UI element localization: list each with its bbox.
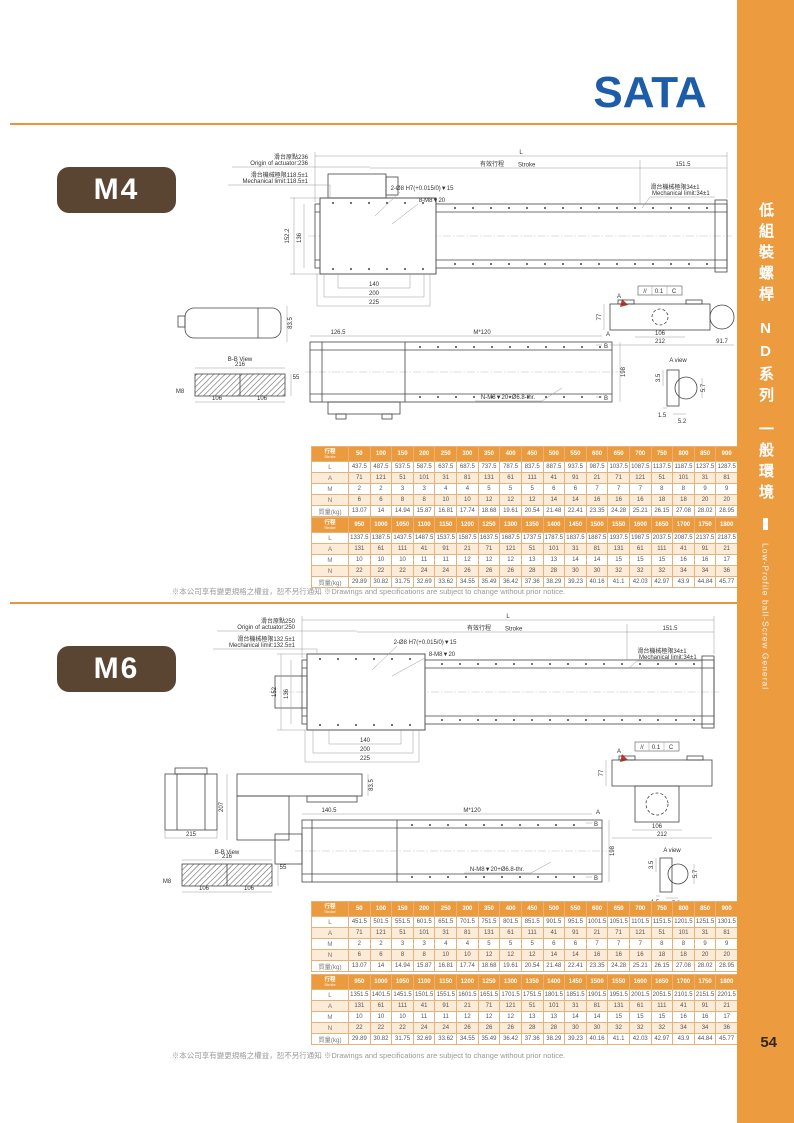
value-cell: 31 — [694, 473, 716, 484]
stroke-value-cell: 700 — [629, 447, 651, 462]
value-cell: 40.16 — [586, 1034, 608, 1045]
value-cell: 23.35 — [586, 961, 608, 972]
spec-table-row: L1337.51387.51437.51487.51537.51587.5163… — [312, 533, 738, 544]
value-cell: 26 — [478, 566, 500, 577]
value-cell: 31 — [694, 928, 716, 939]
value-cell: 7 — [608, 939, 630, 950]
value-cell: 1451.5 — [392, 990, 414, 1001]
value-cell: 1337.5 — [349, 533, 371, 544]
stroke-value-cell: 1250 — [478, 518, 500, 533]
value-cell: 18 — [673, 950, 695, 961]
stroke-value-cell: 1500 — [586, 975, 608, 990]
dim-label: 136 — [297, 232, 303, 243]
dim-label: 5.2 — [678, 419, 687, 425]
value-cell: 5 — [500, 939, 522, 950]
dim-label: 152.2 — [285, 228, 291, 244]
value-cell: 3 — [413, 484, 435, 495]
value-cell: 7 — [629, 939, 651, 950]
stroke-value-cell: 1550 — [608, 518, 630, 533]
value-cell: 35.49 — [478, 1034, 500, 1045]
model-badge-m4: M4 — [57, 167, 176, 213]
stroke-value-cell: 50 — [349, 447, 371, 462]
spec-table-row: 質量(kg)13.071414.9415.8716.8117.7418.6819… — [312, 506, 738, 517]
value-cell: 28.95 — [716, 961, 738, 972]
value-cell: 32.69 — [413, 1034, 435, 1045]
value-cell: 51 — [521, 544, 543, 555]
value-cell: 987.5 — [586, 462, 608, 473]
stroke-value-cell: 1400 — [543, 975, 565, 990]
value-cell: 12 — [478, 495, 500, 506]
value-cell: 13 — [521, 1012, 543, 1023]
value-cell: 3 — [392, 939, 414, 950]
value-cell: 22.41 — [565, 961, 587, 972]
value-cell: 12 — [500, 555, 522, 566]
m6-plan-dimensions: L 有效行程 Stroke 151.5 滑台原點250 Origin of ac… — [213, 614, 714, 762]
value-cell: 39.23 — [565, 1034, 587, 1045]
spec-table-row: M101010111112121213131414151515161617 — [312, 555, 738, 566]
value-cell: 25.21 — [629, 506, 651, 517]
row-label-cell: M — [312, 555, 349, 566]
dim-label: 3.5 — [649, 860, 655, 869]
value-cell: 34.55 — [457, 1034, 479, 1045]
stroke-value-cell: 600 — [586, 447, 608, 462]
value-cell: 2 — [349, 939, 371, 950]
value-cell: 51 — [521, 1001, 543, 1012]
value-cell: 1901.5 — [586, 990, 608, 1001]
datum-marker-a: A — [617, 294, 621, 300]
value-cell: 42.03 — [629, 1034, 651, 1045]
value-cell: 10 — [392, 555, 414, 566]
limit-annotation-en: Mechanical limit:132.5±1 — [229, 643, 296, 649]
value-cell: 20 — [694, 950, 716, 961]
dim-label: 151.5 — [675, 162, 691, 168]
value-cell: 537.5 — [392, 462, 414, 473]
value-cell: 701.5 — [457, 917, 479, 928]
value-cell: 2001.5 — [629, 990, 651, 1001]
value-cell: 29.89 — [349, 1034, 371, 1045]
value-cell: 45.77 — [716, 1034, 738, 1045]
value-cell: 651.5 — [435, 917, 457, 928]
value-cell: 41 — [413, 1001, 435, 1012]
dim-label: 91.7 — [716, 339, 728, 345]
disclaimer: ※本公司享有變更規格之權益，恕不另行通知 ※Drawings and speci… — [0, 1050, 737, 1061]
value-cell: 1887.5 — [586, 533, 608, 544]
stroke-header-row: 行程Stroke50100150200250300350400450500550… — [312, 447, 738, 462]
row-label-cell: A — [312, 1001, 349, 1012]
value-cell: 14 — [370, 506, 392, 517]
stroke-header-row: 行程Stroke95010001050110011501200125013001… — [312, 518, 738, 533]
value-cell: 111 — [521, 928, 543, 939]
stroke-value-cell: 1150 — [435, 975, 457, 990]
value-cell: 30.82 — [370, 1034, 392, 1045]
value-cell: 13.07 — [349, 961, 371, 972]
value-cell: 26.15 — [651, 961, 673, 972]
stroke-value-cell: 1400 — [543, 518, 565, 533]
value-cell: 12 — [521, 950, 543, 961]
value-cell: 41.1 — [608, 1034, 630, 1045]
value-cell: 13 — [543, 555, 565, 566]
dim-label: 106 — [244, 886, 255, 892]
value-cell: 6 — [543, 484, 565, 495]
value-cell: 30 — [565, 1023, 587, 1034]
value-cell: 81 — [716, 928, 738, 939]
value-cell: 1737.5 — [521, 533, 543, 544]
value-cell: 28 — [521, 1023, 543, 1034]
value-cell: 9 — [694, 939, 716, 950]
value-cell: 71 — [349, 473, 371, 484]
value-cell: 18 — [651, 495, 673, 506]
stroke-value-cell: 350 — [478, 447, 500, 462]
value-cell: 28.95 — [716, 506, 738, 517]
value-cell: 2087.5 — [673, 533, 695, 544]
stroke-value-cell: 1650 — [651, 975, 673, 990]
value-cell: 10 — [457, 950, 479, 961]
value-cell: 91 — [565, 473, 587, 484]
row-label-cell: L — [312, 917, 349, 928]
value-cell: 1087.5 — [629, 462, 651, 473]
spec-table-row: N222222242426262628283030323232343436 — [312, 566, 738, 577]
spec-table-row: M101010111112121213131414151515161617 — [312, 1012, 738, 1023]
value-cell: 28.02 — [694, 961, 716, 972]
value-cell: 1287.5 — [716, 462, 738, 473]
value-cell: 3 — [413, 939, 435, 950]
value-cell: 937.5 — [565, 462, 587, 473]
value-cell: 637.5 — [435, 462, 457, 473]
value-cell: 23.35 — [586, 506, 608, 517]
stroke-header-cell: 行程Stroke — [312, 975, 349, 990]
row-label-cell: L — [312, 533, 349, 544]
value-cell: 10 — [435, 950, 457, 961]
value-cell: 2187.5 — [716, 533, 738, 544]
value-cell: 15 — [651, 555, 673, 566]
value-cell: 6 — [565, 939, 587, 950]
value-cell: 9 — [716, 939, 738, 950]
stroke-label-zh: 有效行程 — [480, 160, 504, 168]
value-cell: 451.5 — [349, 917, 371, 928]
value-cell: 61 — [629, 1001, 651, 1012]
value-cell: 33.62 — [435, 1034, 457, 1045]
value-cell: 25.21 — [629, 961, 651, 972]
value-cell: 31 — [565, 1001, 587, 1012]
value-cell: 6 — [349, 495, 371, 506]
spec-table-row: L451.5501.5551.5601.5651.5701.5751.5801.… — [312, 917, 738, 928]
value-cell: 8 — [413, 495, 435, 506]
thread-label: M8 — [176, 389, 185, 395]
value-cell: 121 — [629, 928, 651, 939]
value-cell: 1687.5 — [500, 533, 522, 544]
stroke-header-cell: 行程Stroke — [312, 902, 349, 917]
value-cell: 27.08 — [673, 506, 695, 517]
value-cell: 51 — [651, 473, 673, 484]
value-cell: 601.5 — [413, 917, 435, 928]
sidebar-series-name: ND系列 — [755, 320, 776, 408]
value-cell: 17.74 — [457, 506, 479, 517]
value-cell: 18.68 — [478, 506, 500, 517]
value-cell: 20 — [716, 950, 738, 961]
value-cell: 887.5 — [543, 462, 565, 473]
value-cell: 34 — [694, 1023, 716, 1034]
value-cell: 28 — [521, 566, 543, 577]
m4-spec-table-2: 行程Stroke95010001050110011501200125013001… — [311, 517, 738, 588]
value-cell: 1951.5 — [608, 990, 630, 1001]
value-cell: 24 — [435, 566, 457, 577]
catalog-page: SATA M4 L — [0, 0, 794, 1123]
stroke-value-cell: 1600 — [629, 518, 651, 533]
value-cell: 91 — [435, 1001, 457, 1012]
value-cell: 21 — [716, 544, 738, 555]
value-cell: 131 — [608, 1001, 630, 1012]
stroke-value-cell: 850 — [694, 447, 716, 462]
value-cell: 31 — [435, 473, 457, 484]
value-cell: 8 — [392, 495, 414, 506]
value-cell: 17 — [716, 1012, 738, 1023]
value-cell: 8 — [673, 484, 695, 495]
origin-annotation-zh: 滑台原點250 — [261, 617, 296, 625]
row-label-cell: 質量(kg) — [312, 506, 349, 517]
value-cell: 111 — [651, 1001, 673, 1012]
dim-label: 212 — [655, 339, 666, 345]
value-cell: 16 — [673, 555, 695, 566]
value-cell: 2051.5 — [651, 990, 673, 1001]
value-cell: 61 — [370, 544, 392, 555]
stroke-header-row: 行程Stroke50100150200250300350400450500550… — [312, 902, 738, 917]
value-cell: 1101.5 — [629, 917, 651, 928]
row-label-cell: A — [312, 544, 349, 555]
value-cell: 5 — [521, 939, 543, 950]
value-cell: 16 — [694, 555, 716, 566]
limit-right-zh: 滑台機械極限34±1 — [637, 647, 687, 655]
m4-a-view: A view 3.5 5.7 1.5 5.2 — [656, 358, 707, 425]
value-cell: 12 — [500, 950, 522, 961]
value-cell: 16 — [629, 495, 651, 506]
stroke-value-cell: 1250 — [478, 975, 500, 990]
m4-plan-dimensions: L 有效行程 Stroke 151.5 滑台原點236 Origin of ac… — [228, 150, 727, 306]
value-cell: 2151.5 — [694, 990, 716, 1001]
value-cell: 6 — [349, 950, 371, 961]
bottom-tap-callout: N-M8▼20+Ø6.8-thr. — [481, 395, 535, 401]
stroke-value-cell: 850 — [694, 902, 716, 917]
dim-label: 126.5 — [330, 330, 346, 336]
view-marker-a: A — [606, 332, 610, 338]
value-cell: 15 — [608, 1012, 630, 1023]
dim-label: 106 — [199, 886, 210, 892]
value-cell: 1387.5 — [370, 533, 392, 544]
value-cell: 1437.5 — [392, 533, 414, 544]
row-label-cell: N — [312, 495, 349, 506]
value-cell: 8 — [651, 939, 673, 950]
tolerance-value: 0.1 — [652, 745, 661, 751]
sidebar-divider-bar — [763, 518, 768, 530]
value-cell: 41 — [413, 544, 435, 555]
dim-label: 5.7 — [701, 383, 707, 392]
a-view-title: A view — [663, 848, 681, 854]
dim-label: 140 — [360, 738, 371, 744]
origin-annotation-en: Origin of actuator:236 — [250, 161, 308, 167]
value-cell: 2 — [370, 484, 392, 495]
value-cell: 1937.5 — [608, 533, 630, 544]
page-number: 54 — [760, 1034, 777, 1051]
tap-hole-callout: 8-M8▼20 — [429, 652, 456, 658]
a-view-title: A view — [669, 358, 687, 364]
value-cell: 1301.5 — [716, 917, 738, 928]
value-cell: 111 — [392, 544, 414, 555]
spec-table-row: A131611114191217112151101318113161111419… — [312, 544, 738, 555]
value-cell: 31 — [565, 544, 587, 555]
stroke-value-cell: 1750 — [694, 975, 716, 990]
value-cell: 6 — [370, 950, 392, 961]
value-cell: 36.42 — [500, 1034, 522, 1045]
stroke-value-cell: 1300 — [500, 975, 522, 990]
value-cell: 13 — [521, 555, 543, 566]
value-cell: 14 — [565, 495, 587, 506]
value-cell: 111 — [521, 473, 543, 484]
stroke-value-cell: 400 — [500, 902, 522, 917]
value-cell: 16.81 — [435, 506, 457, 517]
value-cell: 22 — [392, 1023, 414, 1034]
value-cell: 131 — [478, 928, 500, 939]
value-cell: 61 — [500, 928, 522, 939]
value-cell: 1787.5 — [543, 533, 565, 544]
value-cell: 30 — [586, 566, 608, 577]
bottom-tap-callout: N-M8▼20+Ø6.8-thr. — [470, 867, 524, 873]
value-cell: 28.02 — [694, 506, 716, 517]
dim-label: 77 — [599, 769, 605, 776]
limit-right-zh: 滑台機械極限34±1 — [650, 183, 700, 191]
stroke-value-cell: 1450 — [565, 518, 587, 533]
value-cell: 30 — [586, 1023, 608, 1034]
stroke-value-cell: 800 — [673, 902, 695, 917]
stroke-value-cell: 150 — [392, 447, 414, 462]
value-cell: 81 — [586, 1001, 608, 1012]
row-label-cell: M — [312, 939, 349, 950]
stroke-value-cell: 1350 — [521, 518, 543, 533]
stroke-value-cell: 700 — [629, 902, 651, 917]
dim-label: 5.7 — [693, 869, 699, 878]
value-cell: 121 — [500, 544, 522, 555]
value-cell: 26 — [457, 566, 479, 577]
value-cell: 22 — [349, 566, 371, 577]
value-cell: 6 — [543, 939, 565, 950]
value-cell: 30 — [565, 566, 587, 577]
stroke-value-cell: 1100 — [413, 975, 435, 990]
value-cell: 24 — [435, 1023, 457, 1034]
stroke-value-cell: 1000 — [370, 975, 392, 990]
dim-label: 198 — [621, 366, 627, 377]
value-cell: 2101.5 — [673, 990, 695, 1001]
stroke-label-zh: 有效行程 — [467, 624, 491, 632]
stroke-value-cell: 750 — [651, 447, 673, 462]
value-cell: 28 — [543, 1023, 565, 1034]
stroke-value-cell: 200 — [413, 902, 435, 917]
dim-label: 207 — [219, 801, 225, 812]
value-cell: 32 — [651, 1023, 673, 1034]
value-cell: 27.08 — [673, 961, 695, 972]
value-cell: 7 — [629, 484, 651, 495]
stroke-value-cell: 550 — [565, 902, 587, 917]
tolerance-value: 0.1 — [655, 289, 664, 295]
spec-table-row: L437.5487.5537.5587.5637.5687.5737.5787.… — [312, 462, 738, 473]
stroke-value-cell: 50 — [349, 902, 371, 917]
value-cell: 10 — [349, 555, 371, 566]
dim-label: 140 — [369, 282, 380, 288]
disclaimer: ※本公司享有變更規格之權益，恕不另行通知 ※Drawings and speci… — [0, 586, 737, 597]
value-cell: 12 — [500, 1012, 522, 1023]
stroke-value-cell: 1750 — [694, 518, 716, 533]
value-cell: 1537.5 — [435, 533, 457, 544]
value-cell: 7 — [586, 939, 608, 950]
value-cell: 26.15 — [651, 506, 673, 517]
row-label-cell: M — [312, 484, 349, 495]
value-cell: 737.5 — [478, 462, 500, 473]
value-cell: 1201.5 — [673, 917, 695, 928]
value-cell: 851.5 — [521, 917, 543, 928]
m6-bb-view: B-B View 216 55 M8 106 106 — [163, 850, 287, 892]
stroke-value-cell: 750 — [651, 902, 673, 917]
dim-label: 225 — [369, 300, 380, 306]
value-cell: 22 — [370, 1023, 392, 1034]
spec-table-row: N66881010121212141416161618182020 — [312, 495, 738, 506]
value-cell: 15.87 — [413, 961, 435, 972]
m6-a-view: A view 3.5 5.7 1.5 5.2 — [649, 848, 699, 907]
tolerance-datum: C — [672, 289, 677, 295]
stroke-value-cell: 1150 — [435, 518, 457, 533]
value-cell: 41 — [673, 544, 695, 555]
spec-table-row: M223344555667778899 — [312, 484, 738, 495]
value-cell: 18 — [673, 495, 695, 506]
stroke-value-cell: 1200 — [457, 518, 479, 533]
spec-table-row: 質量(kg)29.8930.8231.7532.6933.6234.5535.4… — [312, 1034, 738, 1045]
value-cell: 951.5 — [565, 917, 587, 928]
value-cell: 20 — [694, 495, 716, 506]
value-cell: 14 — [565, 950, 587, 961]
value-cell: 24 — [413, 566, 435, 577]
stroke-value-cell: 300 — [457, 902, 479, 917]
value-cell: 91 — [565, 928, 587, 939]
value-cell: 14.94 — [392, 961, 414, 972]
value-cell: 21 — [586, 473, 608, 484]
value-cell: 10 — [435, 495, 457, 506]
value-cell: 38.29 — [543, 1034, 565, 1045]
stroke-value-cell: 1350 — [521, 975, 543, 990]
value-cell: 14 — [543, 950, 565, 961]
row-label-cell: L — [312, 462, 349, 473]
stroke-value-cell: 450 — [521, 447, 543, 462]
value-cell: 71 — [608, 928, 630, 939]
stroke-value-cell: 500 — [543, 902, 565, 917]
sidebar-series-title: 低組裝螺桿 — [755, 202, 776, 307]
dim-label: 140.5 — [321, 808, 337, 814]
value-cell: 81 — [457, 928, 479, 939]
value-cell: 1801.5 — [543, 990, 565, 1001]
value-cell: 37.36 — [521, 1034, 543, 1045]
value-cell: 21 — [716, 1001, 738, 1012]
tolerance-datum: C — [669, 745, 674, 751]
value-cell: 51 — [392, 473, 414, 484]
dim-label: 106 — [257, 396, 268, 402]
value-cell: 1001.5 — [586, 917, 608, 928]
value-cell: 7 — [586, 484, 608, 495]
value-cell: 22 — [370, 566, 392, 577]
spec-table-row: N222222242426262628283030323232343436 — [312, 1023, 738, 1034]
value-cell: 1751.5 — [521, 990, 543, 1001]
value-cell: 501.5 — [370, 917, 392, 928]
value-cell: 8 — [413, 950, 435, 961]
value-cell: 24 — [413, 1023, 435, 1034]
value-cell: 12 — [478, 1012, 500, 1023]
dim-label: 3.5 — [656, 373, 662, 382]
stroke-value-cell: 1200 — [457, 975, 479, 990]
datum-marker-a: A — [617, 749, 621, 755]
